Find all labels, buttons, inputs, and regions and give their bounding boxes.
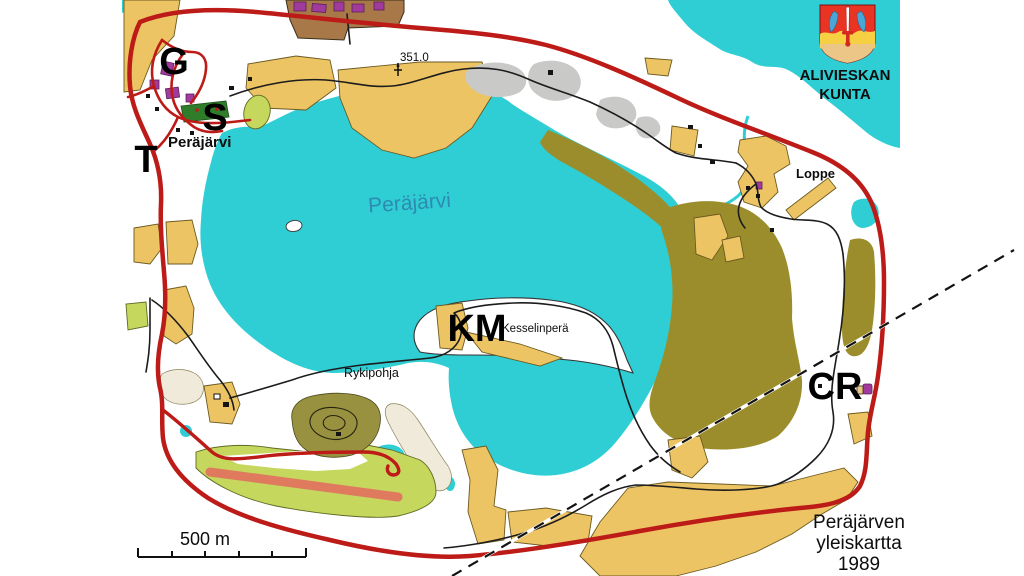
marker-cr: CR — [808, 366, 863, 408]
bog-west — [159, 370, 203, 405]
map-title-line3: 1989 — [838, 554, 880, 575]
loppe-label: Loppe — [796, 166, 835, 181]
municipality-name-line2: KUNTA — [819, 86, 871, 103]
kesselinpera-label: Kesselinperä — [502, 323, 569, 335]
marker-km: KM — [447, 308, 506, 350]
marker-t: T — [134, 139, 157, 181]
map-page: 500 m Peräjärvi Peräjärvi Kesselinperä R… — [0, 0, 1024, 576]
map-title-line1: Peräjärven — [813, 512, 905, 533]
marker-g: G — [159, 41, 189, 83]
field-green-west — [126, 302, 148, 330]
map-title-line2: yleiskartta — [816, 533, 902, 554]
rykipohja-label: Rykipohja — [344, 366, 399, 380]
elevation-label: 351.0 — [400, 52, 429, 64]
general-map-perajarvi: 500 m Peräjärvi Peräjärvi Kesselinperä R… — [0, 0, 1024, 576]
municipal-coat-of-arms-icon — [820, 5, 875, 63]
marker-s: S — [202, 97, 227, 139]
scale-label: 500 m — [180, 529, 230, 549]
municipality-name-line1: ALIVIESKAN — [800, 67, 891, 84]
